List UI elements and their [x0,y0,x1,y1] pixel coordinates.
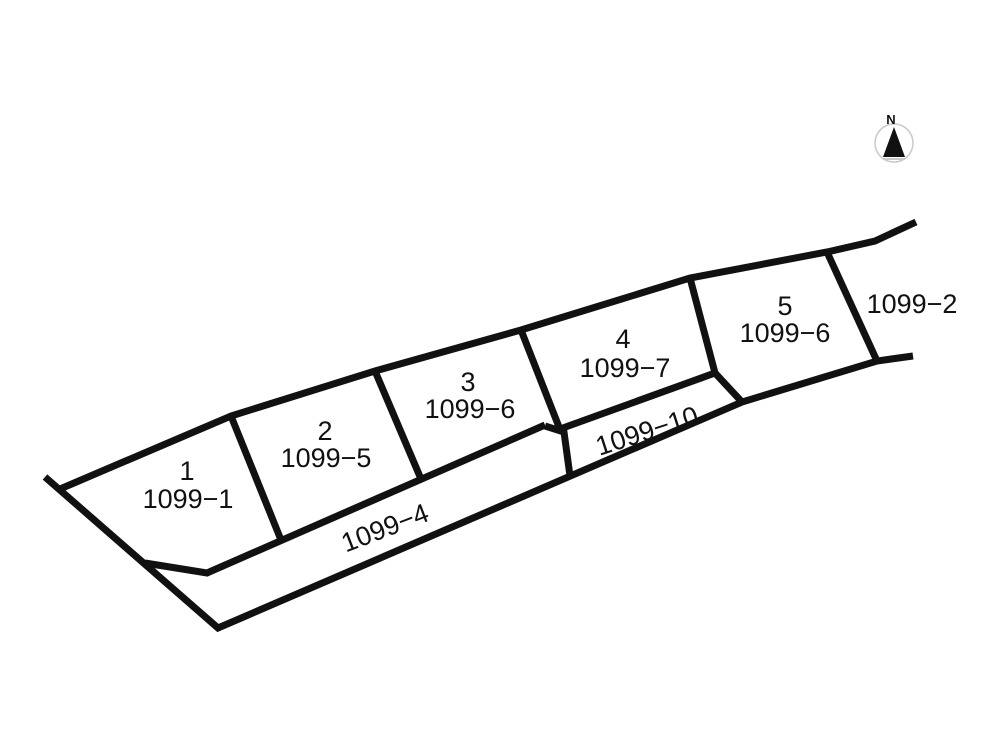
plot-1-number-label: 1 [179,456,194,486]
strip-1099-10-left-end [545,426,570,476]
north-arrow-needle-icon [883,127,905,157]
plot-3-4-divider [521,330,559,427]
north-arrow: N [875,112,913,162]
plot-4-5-divider [690,278,715,373]
plot-1-parcel-label: 1099−1 [143,484,234,514]
plot-3-number-label: 3 [460,367,475,397]
plot-4-parcel-label: 1099−7 [580,353,671,383]
plot-1-2-divider [231,416,281,540]
plot-4-number-label: 4 [615,324,630,354]
north-label: N [886,112,895,127]
plot-2-parcel-label: 1099−5 [281,443,372,473]
plot-5-parcel-label: 1099−6 [740,318,831,348]
lot-map-canvas: 1 1099−1 2 1099−5 3 1099−6 4 1099−7 5 10… [0,0,1000,750]
plot-2-3-divider [375,371,421,479]
plot-2-number-label: 2 [317,416,332,446]
plot-3-parcel-label: 1099−6 [425,394,516,424]
plot-5-number-label: 5 [777,291,792,321]
parcel-map-drawing: 1 1099−1 2 1099−5 3 1099−6 4 1099−7 5 10… [0,0,1000,750]
adjacent-parcel-1099-2-label: 1099−2 [867,289,958,319]
